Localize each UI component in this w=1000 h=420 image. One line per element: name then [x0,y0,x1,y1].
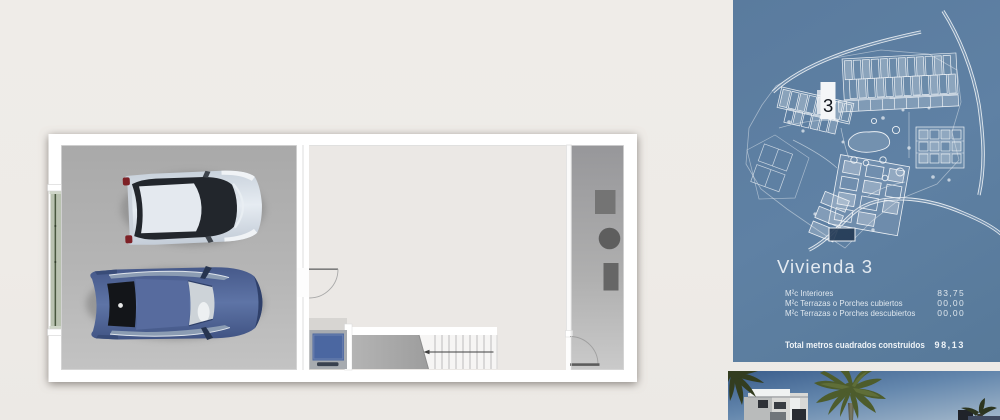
svg-text:3: 3 [823,95,833,116]
